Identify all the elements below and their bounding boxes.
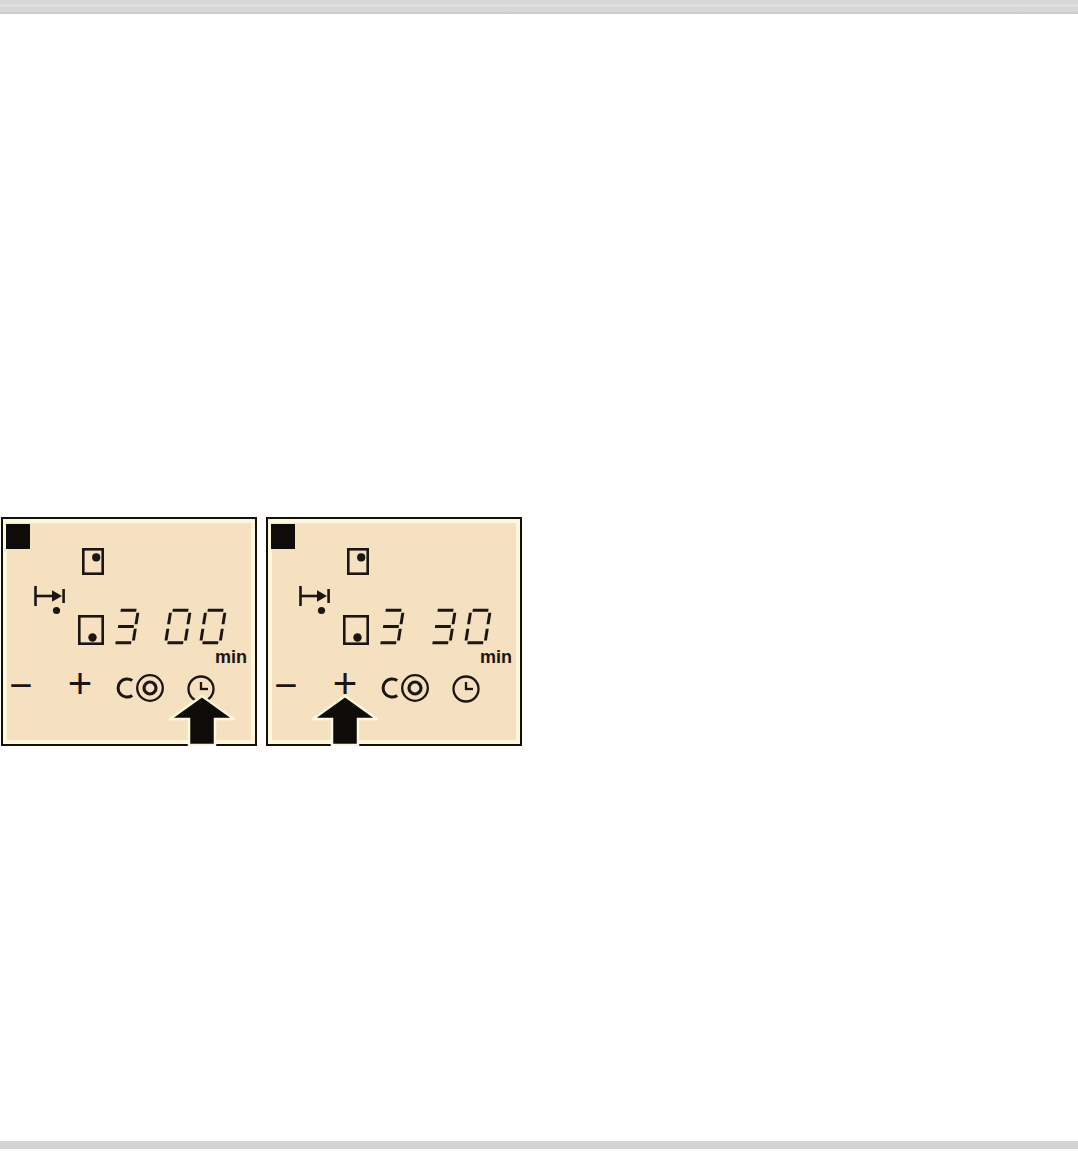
zone-select-dot	[318, 607, 325, 614]
press-indicator-arrow	[169, 695, 235, 746]
panel-display-area: min − +	[7, 523, 251, 740]
rear-zone-icon	[82, 548, 104, 575]
minus-glyph: −	[9, 665, 32, 705]
plus-button: +	[67, 671, 93, 697]
minus-button: −	[272, 672, 300, 698]
control-panel-figure-2: min − +	[266, 517, 522, 746]
minus-button: −	[7, 672, 35, 698]
bottom-divider-bar	[0, 1141, 1078, 1149]
panel-display-area: min − +	[272, 523, 516, 740]
control-panel-figure-1: min − +	[1, 517, 257, 746]
plus-glyph: +	[68, 663, 93, 705]
minus-glyph: −	[274, 665, 297, 705]
timer-display	[373, 608, 501, 645]
front-zone-icon	[343, 615, 369, 645]
unit-label: min	[203, 647, 247, 669]
timer-assign-arrow-icon	[33, 585, 67, 619]
top-divider-bar	[0, 0, 1078, 14]
front-zone-icon	[78, 615, 104, 645]
dual-zone-button-icon	[376, 671, 434, 705]
unit-label: min	[468, 647, 512, 669]
dual-zone-button-icon	[111, 671, 169, 705]
timer-button-clock-icon	[452, 675, 480, 703]
zone-select-dot	[53, 607, 60, 614]
timer-display	[108, 608, 236, 645]
rear-zone-icon	[347, 548, 369, 575]
press-indicator-arrow	[312, 695, 378, 746]
step-marker-square	[6, 524, 30, 549]
step-marker-square	[271, 524, 295, 549]
timer-assign-arrow-icon	[298, 585, 332, 619]
plus-button: +	[332, 671, 358, 697]
